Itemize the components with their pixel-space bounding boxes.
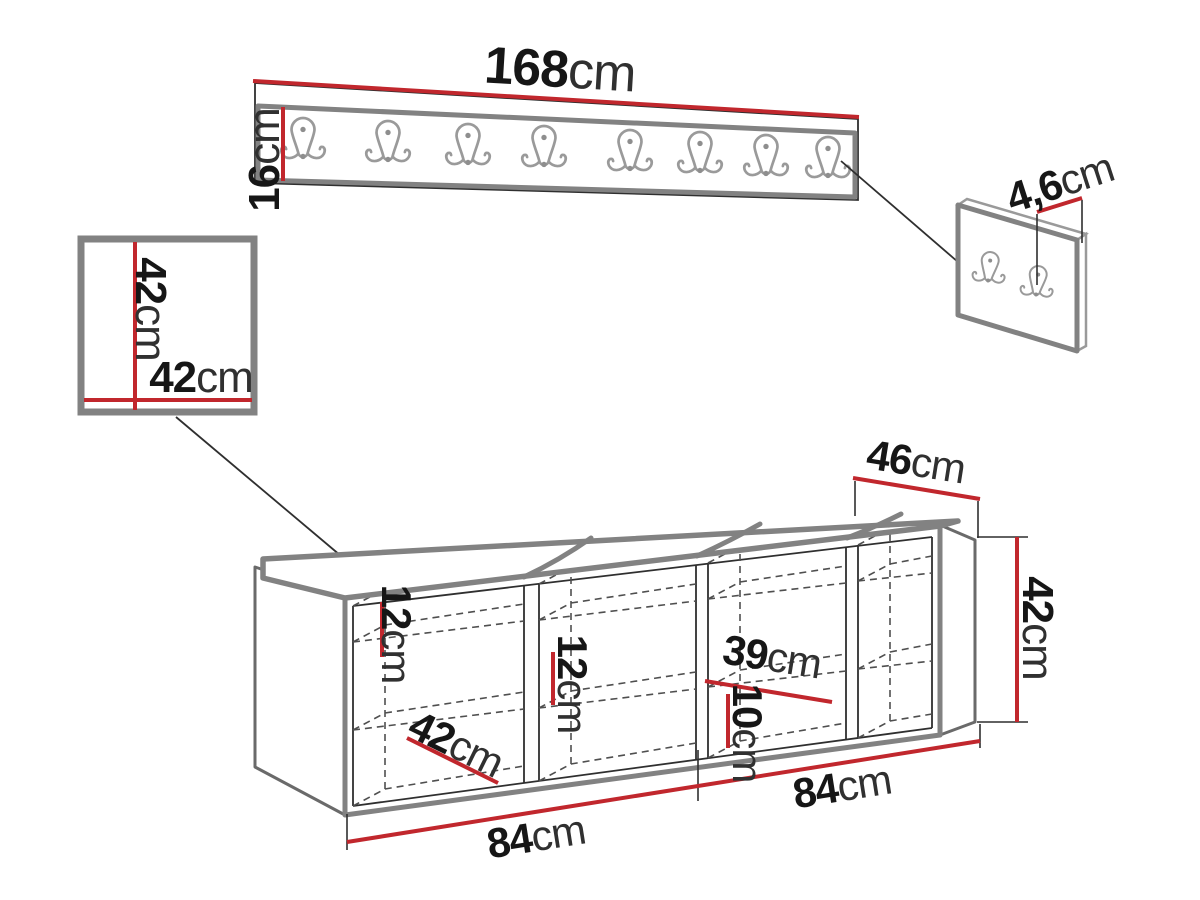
furniture-dimension-diagram: 168cm 16cm 4,6cm 42cm 42cm 46cm 42cm 12c… bbox=[0, 0, 1200, 900]
dim-value: 42 bbox=[126, 257, 175, 304]
dim-value: 16 bbox=[240, 165, 289, 212]
dim-unit: cm bbox=[764, 633, 825, 688]
dim-bench-height-label: 42cm bbox=[1015, 576, 1059, 680]
bench-left-side bbox=[255, 567, 345, 815]
dim-unit: cm bbox=[240, 108, 289, 165]
dim-rack-height-label: 16cm bbox=[243, 108, 287, 212]
dim-value: 46 bbox=[864, 431, 916, 484]
dim-value: 84 bbox=[789, 764, 841, 817]
dim-unit: cm bbox=[528, 806, 589, 861]
dim-value: 42 bbox=[149, 353, 196, 402]
callout-line-bench bbox=[176, 417, 347, 561]
callout-line-hook-panel bbox=[841, 161, 958, 262]
dim-shelf-gap-1-label: 12cm bbox=[375, 585, 417, 684]
dim-value: 39 bbox=[720, 626, 772, 679]
dim-shelf-gap-2-label: 12cm bbox=[551, 635, 593, 734]
dim-unit: cm bbox=[834, 756, 895, 811]
dim-value: 168 bbox=[483, 36, 570, 99]
dim-unit: cm bbox=[373, 629, 420, 683]
dim-value: 42 bbox=[1013, 576, 1062, 623]
dim-wall-panel-height-label: 42cm bbox=[128, 257, 172, 361]
dim-value: 10 bbox=[724, 684, 771, 729]
diagram-linework bbox=[0, 0, 1200, 900]
dim-value: 12 bbox=[373, 585, 420, 630]
dim-unit: cm bbox=[724, 728, 771, 782]
dim-shelf-gap-3-label: 10cm bbox=[726, 684, 768, 783]
dim-wall-panel-width-label: 42cm bbox=[149, 356, 253, 400]
dim-unit: cm bbox=[566, 42, 637, 104]
dim-unit: cm bbox=[1013, 623, 1062, 680]
dim-value: 12 bbox=[549, 635, 596, 680]
dim-unit: cm bbox=[196, 353, 253, 402]
dim-unit: cm bbox=[908, 438, 969, 493]
dim-rack-width-label: 168cm bbox=[483, 39, 637, 100]
storage-bench bbox=[255, 478, 1028, 850]
bench-right-side bbox=[940, 525, 975, 735]
dim-value: 84 bbox=[483, 814, 535, 867]
dim-unit: cm bbox=[549, 679, 596, 733]
